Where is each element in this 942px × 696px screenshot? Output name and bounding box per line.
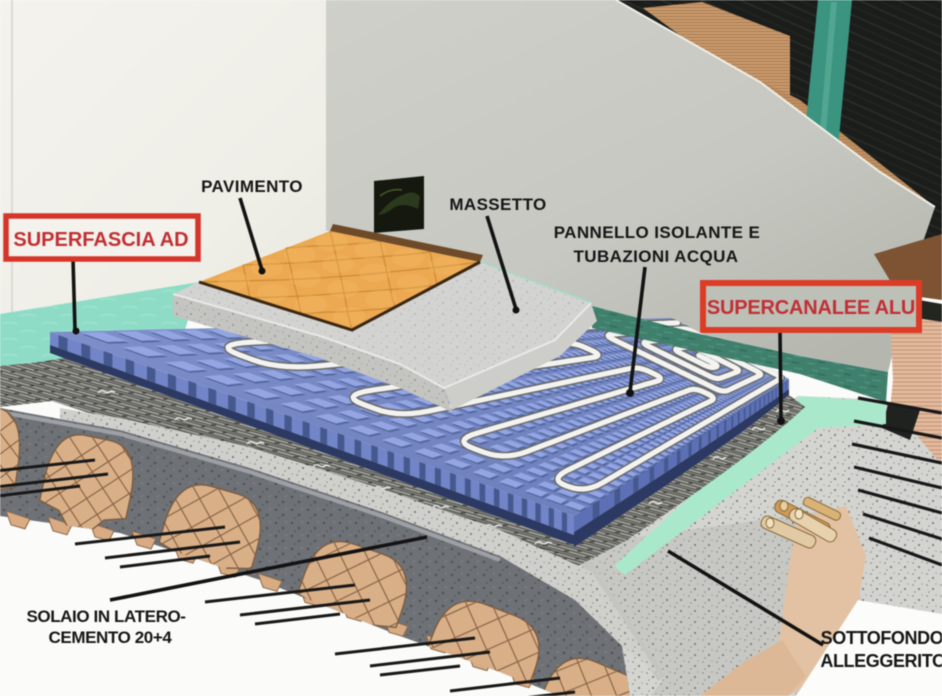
- svg-text:PAVIMENTO: PAVIMENTO: [201, 177, 303, 196]
- svg-text:SOLAIO IN LATERO-: SOLAIO IN LATERO-: [26, 607, 185, 626]
- svg-text:ALLEGGERITO: ALLEGGERITO: [820, 651, 942, 671]
- svg-text:PANNELLO ISOLANTE E: PANNELLO ISOLANTE E: [554, 223, 761, 242]
- svg-text:CEMENTO 20+4: CEMENTO 20+4: [49, 628, 173, 647]
- svg-text:SUPERFASCIA AD: SUPERFASCIA AD: [13, 229, 188, 251]
- svg-text:MASSETTO: MASSETTO: [449, 195, 546, 214]
- svg-text:TUBAZIONI ACQUA: TUBAZIONI ACQUA: [574, 247, 739, 266]
- svg-text:SOTTOFONDO: SOTTOFONDO: [821, 628, 942, 648]
- svg-text:SUPERCANALEE ALU: SUPERCANALEE ALU: [707, 297, 915, 319]
